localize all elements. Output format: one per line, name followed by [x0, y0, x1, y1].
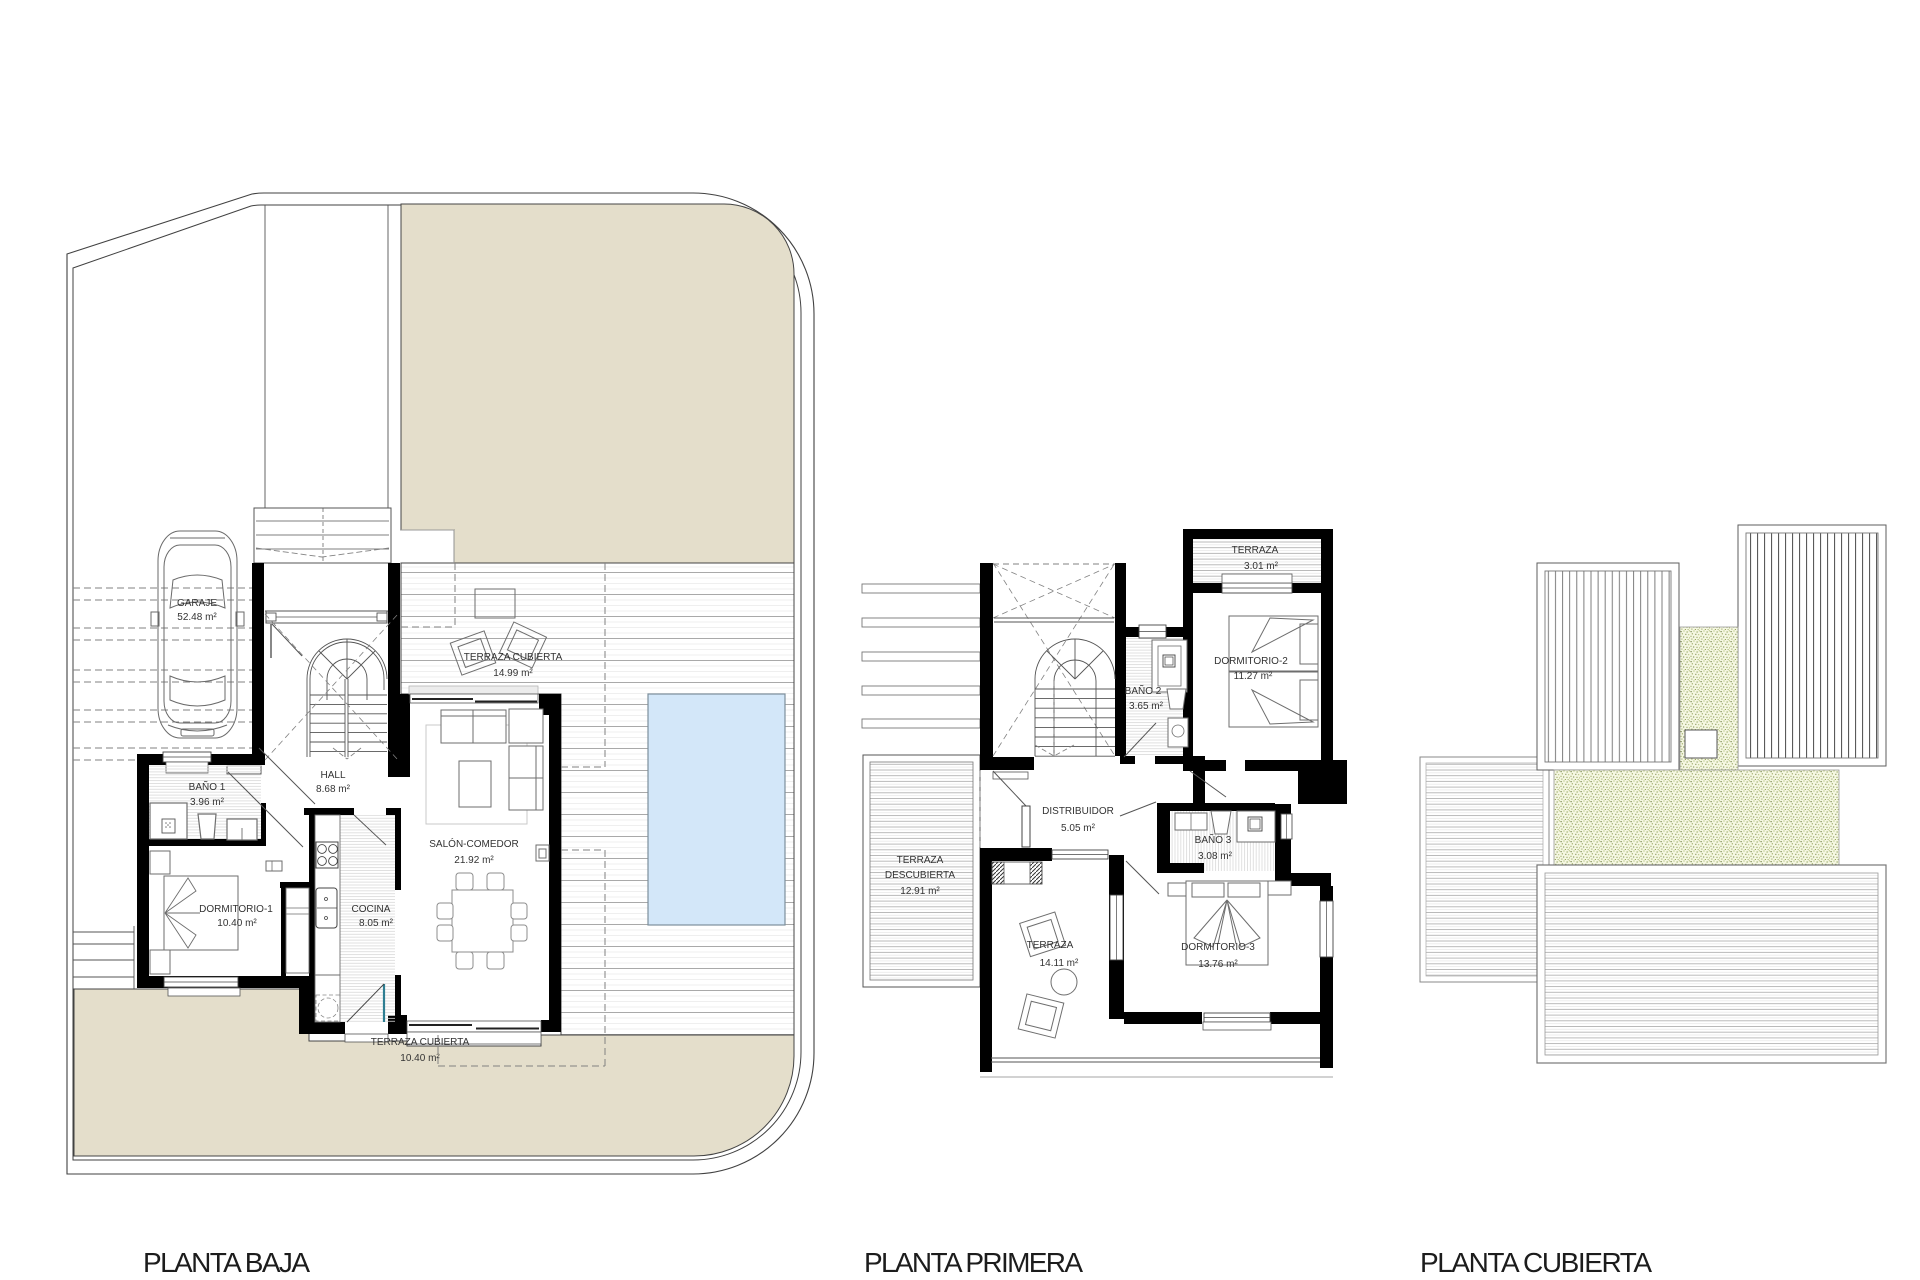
svg-text:13.76 m²: 13.76 m² — [1198, 959, 1238, 970]
svg-text:HALL: HALL — [320, 770, 345, 781]
svg-text:DORMITORIO-1: DORMITORIO-1 — [199, 904, 273, 915]
svg-text:3.65 m²: 3.65 m² — [1129, 701, 1164, 712]
svg-text:3.01 m²: 3.01 m² — [1244, 561, 1279, 572]
svg-text:TERRAZA CUBIERTA: TERRAZA CUBIERTA — [371, 1037, 470, 1048]
svg-text:PLANTA PRIMERA: PLANTA PRIMERA — [864, 1247, 1083, 1278]
svg-text:COCINA: COCINA — [352, 904, 391, 915]
svg-text:12.91 m²: 12.91 m² — [900, 886, 940, 897]
svg-text:BAÑO 2: BAÑO 2 — [1125, 684, 1162, 697]
svg-text:14.11 m²: 14.11 m² — [1040, 958, 1079, 969]
svg-text:DORMITORIO-2: DORMITORIO-2 — [1214, 656, 1288, 667]
svg-text:10.40 m²: 10.40 m² — [217, 918, 257, 929]
svg-text:52.48 m²: 52.48 m² — [177, 612, 217, 623]
svg-text:BAÑO 1: BAÑO 1 — [189, 780, 226, 793]
svg-text:PLANTA BAJA: PLANTA BAJA — [143, 1247, 310, 1278]
svg-text:8.05 m²: 8.05 m² — [359, 918, 394, 929]
svg-text:DISTRIBUIDOR: DISTRIBUIDOR — [1042, 806, 1114, 817]
svg-text:SALÓN-COMEDOR: SALÓN-COMEDOR — [429, 837, 518, 850]
svg-text:8.68 m²: 8.68 m² — [316, 784, 351, 795]
svg-text:BAÑO 3: BAÑO 3 — [1195, 833, 1232, 846]
svg-text:TERRAZA CUBIERTA: TERRAZA CUBIERTA — [464, 652, 563, 663]
svg-text:GARAJE: GARAJE — [177, 598, 217, 609]
svg-text:14.99 m²: 14.99 m² — [493, 668, 533, 679]
svg-text:TERRAZA: TERRAZA — [897, 855, 944, 866]
svg-text:DESCUBIERTA: DESCUBIERTA — [885, 870, 956, 881]
svg-text:5.05 m²: 5.05 m² — [1061, 823, 1096, 834]
svg-text:11.27 m²: 11.27 m² — [1234, 671, 1273, 682]
svg-text:21.92 m²: 21.92 m² — [454, 855, 494, 866]
svg-text:3.08 m²: 3.08 m² — [1198, 851, 1233, 862]
svg-text:TERRAZA: TERRAZA — [1027, 940, 1074, 951]
svg-text:PLANTA CUBIERTA: PLANTA CUBIERTA — [1420, 1247, 1652, 1278]
svg-text:3.96 m²: 3.96 m² — [190, 797, 225, 808]
svg-text:10.40 m²: 10.40 m² — [400, 1053, 440, 1064]
svg-text:DORMITORIO-3: DORMITORIO-3 — [1181, 942, 1255, 953]
svg-text:TERRAZA: TERRAZA — [1232, 545, 1279, 556]
